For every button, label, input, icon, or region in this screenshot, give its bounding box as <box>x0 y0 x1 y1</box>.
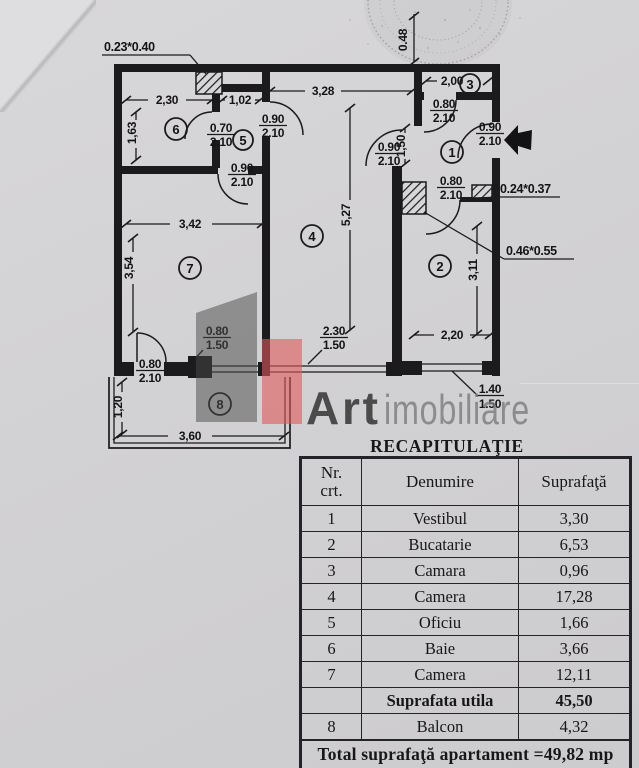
svg-text:2.10: 2.10 <box>433 111 456 125</box>
svg-text:0.90: 0.90 <box>378 140 401 154</box>
scanned-floorplan-page: 2,30 1,02 1,63 3,28 2,00 0.48 1,50 5,27 … <box>0 0 639 768</box>
table-row: 2 Bucatarie 6,53 <box>302 532 629 558</box>
dim-balcon-width: 3,60 <box>179 429 202 443</box>
room-4-camera: 4 <box>301 225 323 247</box>
svg-text:2.10: 2.10 <box>210 135 233 149</box>
flue-small <box>472 185 492 198</box>
dim-camera7-width: 3,42 <box>179 217 202 231</box>
svg-text:0.80: 0.80 <box>440 174 463 188</box>
label-bath-door: 0.702.10 <box>207 121 235 149</box>
label-hall-door: 0.902.10 <box>259 112 287 140</box>
svg-text:0.80: 0.80 <box>433 97 456 111</box>
entrance-arrow-icon <box>504 125 532 155</box>
svg-text:6: 6 <box>172 122 179 137</box>
label-room4-door: 0.902.10 <box>375 140 403 168</box>
label-flue-small: 0.24*0.37 <box>500 182 551 196</box>
dim-bath-height: 1,63 <box>125 121 139 144</box>
svg-text:2.10: 2.10 <box>139 371 162 385</box>
svg-text:0.90: 0.90 <box>262 112 285 126</box>
recap-title: RECAPITULAŢIE <box>280 436 614 457</box>
room-6-baie: 6 <box>165 118 187 140</box>
dim-oficiu-width: 1,02 <box>229 93 252 107</box>
room-2-bucatarie: 2 <box>429 255 451 277</box>
svg-text:2.10: 2.10 <box>231 175 254 189</box>
svg-text:0.90: 0.90 <box>231 161 254 175</box>
room-1-vestibul: 1 <box>441 141 463 163</box>
watermark: Art imobiliare <box>196 292 530 434</box>
svg-text:3: 3 <box>466 77 473 92</box>
svg-text:2.10: 2.10 <box>262 126 285 140</box>
svg-text:2.30: 2.30 <box>323 324 346 338</box>
table-row: 6 Baie 3,66 <box>302 636 629 662</box>
svg-text:2.10: 2.10 <box>479 134 502 148</box>
svg-text:5: 5 <box>239 133 246 148</box>
table-row: 5 Oficiu 1,66 <box>302 610 629 636</box>
svg-text:2.10: 2.10 <box>440 188 463 202</box>
label-kitchen-door: 0.802.10 <box>437 174 465 202</box>
room-7-camera: 7 <box>179 257 201 279</box>
flue-labels: 0.23*0.40 0.24*0.37 0.46*0.55 <box>102 40 574 259</box>
label-balcony-door: 0.802.10 <box>136 357 164 385</box>
svg-text:1: 1 <box>448 145 455 160</box>
svg-text:2.10: 2.10 <box>378 154 401 168</box>
table-row: 4 Camera 17,28 <box>302 584 629 610</box>
watermark-brand-bold: Art <box>306 382 378 434</box>
table-row-suprafata-utila: Suprafata utila 45,50 <box>302 688 629 714</box>
dim-camara-depth: 0.48 <box>396 28 410 51</box>
dim-balcon-height: 1,20 <box>111 395 125 418</box>
label-room4-window: 2.301.50 <box>308 324 348 364</box>
svg-text:1.50: 1.50 <box>323 338 346 352</box>
dim-bucatarie-width: 2,20 <box>441 328 464 342</box>
dim-bath-width: 2,30 <box>156 93 179 107</box>
dim-camera4-height: 5,27 <box>339 203 353 226</box>
watermark-red-square <box>262 339 302 424</box>
svg-text:0.90: 0.90 <box>479 120 502 134</box>
label-room7-door: 0.902.10 <box>228 161 256 189</box>
label-flue-large: 0.46*0.55 <box>506 244 557 258</box>
table-row: 3 Camara 0,96 <box>302 558 629 584</box>
svg-text:0.70: 0.70 <box>210 121 233 135</box>
label-camara-door: 0.802.10 <box>430 97 458 125</box>
table-row: 7 Camera 12,11 <box>302 662 629 688</box>
dim-camera7-height: 3,54 <box>122 256 136 279</box>
table-row: 8 Balcon 4,32 <box>302 714 629 740</box>
header-suprafata: Suprafaţă <box>519 459 629 505</box>
watermark-gray-shape <box>196 292 257 422</box>
dim-hall-width: 3,28 <box>312 84 335 98</box>
svg-text:4: 4 <box>308 229 316 244</box>
header-nr: Nr. crt. <box>302 459 362 505</box>
flue-top <box>196 72 222 94</box>
table-row: 1 Vestibul 3,30 <box>302 506 629 532</box>
table-total-row: Total suprafaţă apartament =49,82 mp <box>302 740 629 768</box>
svg-text:0.80: 0.80 <box>139 357 162 371</box>
table-header-row: Nr. crt. Denumire Suprafaţă <box>302 459 629 506</box>
room-5-oficiu: 5 <box>233 130 253 150</box>
watermark-brand-light: imobiliare <box>384 386 530 433</box>
header-denumire: Denumire <box>362 459 519 505</box>
flue-large <box>402 182 426 214</box>
stamp-seal <box>349 0 520 68</box>
svg-text:2: 2 <box>436 259 443 274</box>
dim-bucatarie-height: 3,11 <box>466 259 480 281</box>
label-entrance-door: 0.902.10 <box>476 120 504 148</box>
svg-text:7: 7 <box>186 261 193 276</box>
label-flue-top: 0.23*0.40 <box>104 40 155 54</box>
recap-table: Nr. crt. Denumire Suprafaţă 1 Vestibul 3… <box>299 456 632 768</box>
